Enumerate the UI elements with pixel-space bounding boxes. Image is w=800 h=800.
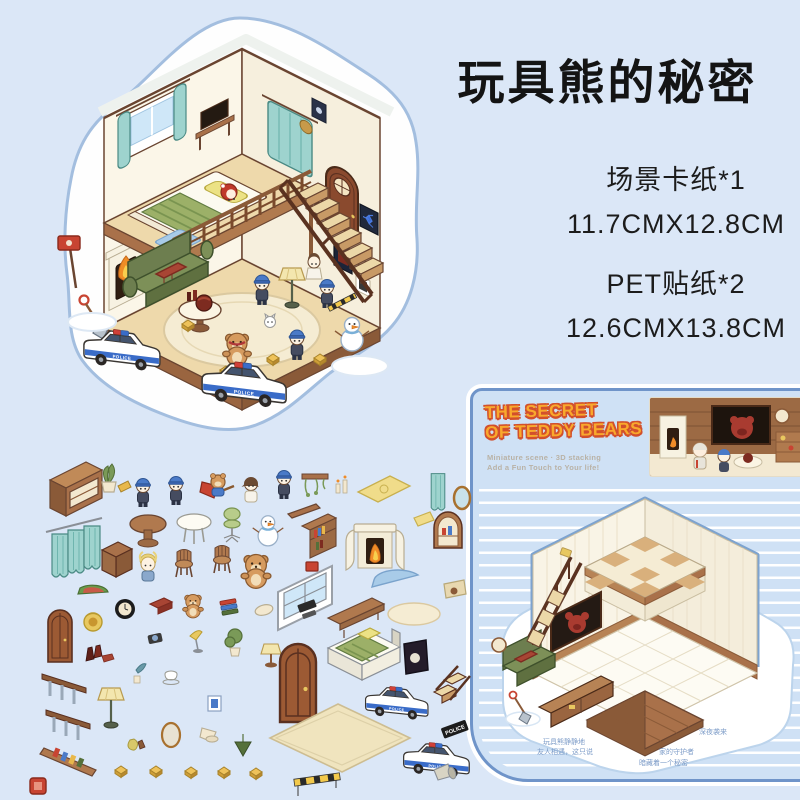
card-note: 暗藏着一个秘密 — [639, 758, 688, 768]
sticker-lion-plaque — [84, 613, 102, 631]
curtain-left — [118, 110, 130, 170]
scene-card: THE SECRET OF TEDDY BEARS Miniature scen… — [470, 388, 800, 782]
sticker-blonde-kid — [140, 552, 156, 581]
sticker-arched-door-big — [280, 644, 316, 722]
sticker-bed — [328, 628, 400, 680]
sticker-cream-rug — [388, 603, 440, 625]
sticker-desk-lamp — [190, 631, 203, 653]
sticker-desk-chair-green — [224, 508, 240, 542]
sticker-book-ledge — [40, 748, 96, 776]
sticker-red-seal — [30, 778, 46, 794]
sticker-candle-pair — [336, 476, 347, 494]
sticker-curtain-single — [431, 474, 445, 511]
sticker-wood-chair — [176, 550, 193, 578]
sticker-shelf-plank — [288, 504, 320, 518]
sticker-police-sign: POLICE — [441, 720, 469, 739]
sticker-display-cabinet — [50, 462, 102, 516]
sticker-wooden-stairs — [434, 666, 470, 703]
sticker-camera — [147, 633, 163, 645]
sticker-yellow-mat — [358, 476, 410, 502]
product-image: POLICE POLICE 玩具熊的秘密 场景卡纸*1 11.7CMX12.8C… — [0, 0, 800, 800]
sticker-hanging-vine-shelf — [302, 474, 328, 497]
sticker-police-officer-3 — [277, 471, 292, 500]
card-note: 家的守护者 — [659, 747, 694, 757]
sticker-wall-clock — [115, 599, 135, 619]
sticker-teddy-mini — [183, 595, 204, 618]
preview-clock — [775, 409, 789, 423]
sticker-potted-plant — [102, 464, 131, 492]
spec-scene-size: 11.7CMX12.8CM — [548, 209, 800, 240]
sticker-caution-barrier — [294, 773, 341, 796]
sticker-teddy-bear — [241, 555, 271, 589]
page-title: 玩具熊的秘密 — [415, 44, 800, 113]
sticker-mini-bookshelf — [302, 514, 336, 558]
spec-sticker-size: 12.6CMX13.8CM — [548, 313, 800, 344]
sticker-evidence-marker — [250, 768, 262, 780]
card-note: 友人相遇，这只说 — [537, 747, 593, 757]
sticker-oval-mirror-2 — [162, 723, 180, 747]
sticker-teacup — [163, 671, 179, 685]
sticker-girl-villager — [242, 478, 259, 503]
sticker-evidence-marker — [218, 767, 230, 779]
sticker-pear-bottle — [128, 739, 145, 750]
sticker-police-officer — [136, 479, 151, 508]
sticker-oval-mirror — [454, 487, 470, 509]
sticker-hanging-plant — [235, 734, 251, 756]
sticker-book-stack — [220, 599, 238, 616]
sticker-wood-chair-2 — [214, 546, 231, 574]
white-cat — [265, 314, 276, 328]
sticker-cone-lamp — [200, 728, 218, 742]
sticker-watermelon — [78, 585, 108, 594]
spec-scene-card: 场景卡纸*1 — [548, 158, 800, 197]
scene-preview-image — [649, 397, 800, 477]
sticker-police-car: POLICE — [366, 684, 428, 721]
sticker-potted-tree — [225, 629, 242, 656]
sticker-oval-tray — [254, 603, 274, 617]
sticker-curtain-triple — [46, 518, 102, 577]
sticker-table-lamp — [261, 644, 281, 668]
spec-pet-sticker: PET贴纸*2 — [548, 262, 800, 301]
sticker-evidence-marker — [185, 767, 197, 779]
sticker-wine-bottles — [86, 645, 114, 662]
sticker-small-frame — [208, 696, 221, 711]
sticker-poster — [444, 580, 466, 598]
sticker-toothbrush-cup — [134, 664, 146, 683]
sticker-floor-lamp — [98, 688, 124, 728]
sticker-arched-door-small — [48, 610, 72, 662]
sticker-envelope — [414, 512, 434, 526]
sticker-window-frame — [278, 562, 332, 630]
sticker-blue-half-rug — [372, 570, 418, 587]
card-clock — [492, 638, 506, 652]
sticker-sheet: POLICE POLICE POLICE — [6, 452, 474, 800]
sticker-stair-railing-2 — [46, 710, 90, 740]
sticker-superhero-bear — [200, 474, 234, 499]
sticker-evidence-marker — [115, 766, 127, 778]
sticker-fireplace — [346, 524, 404, 570]
sticker-white-table — [177, 514, 211, 544]
sticker-arch-display — [434, 512, 462, 548]
completed-scene-illustration: POLICE POLICE — [30, 4, 460, 446]
sticker-round-table — [130, 515, 166, 547]
sticker-dark-frame — [404, 640, 428, 674]
curtain-right — [174, 82, 186, 142]
sticker-red-cushion — [150, 598, 172, 614]
sticker-stair-railing — [42, 674, 86, 704]
sticker-snowman — [253, 516, 284, 546]
sticker-wooden-crate — [102, 542, 132, 577]
card-title: THE SECRET OF TEDDY BEARS — [485, 399, 646, 442]
empty-room-template — [473, 469, 800, 779]
sticker-police-officer-2 — [169, 477, 184, 506]
card-note: 玩具熊静静地 — [543, 737, 585, 747]
sticker-evidence-marker — [150, 766, 162, 778]
card-note: 深夜袭来 — [699, 727, 727, 737]
